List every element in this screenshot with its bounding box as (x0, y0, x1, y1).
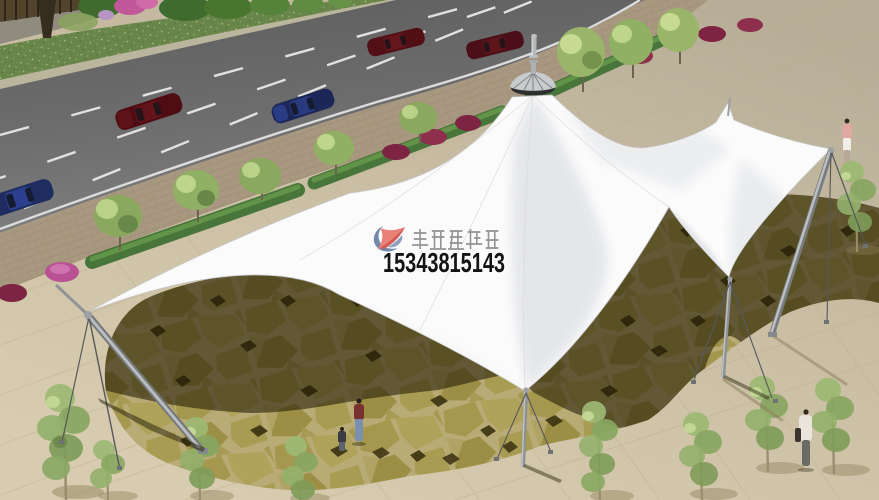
svg-text:15343815143: 15343815143 (383, 247, 505, 278)
